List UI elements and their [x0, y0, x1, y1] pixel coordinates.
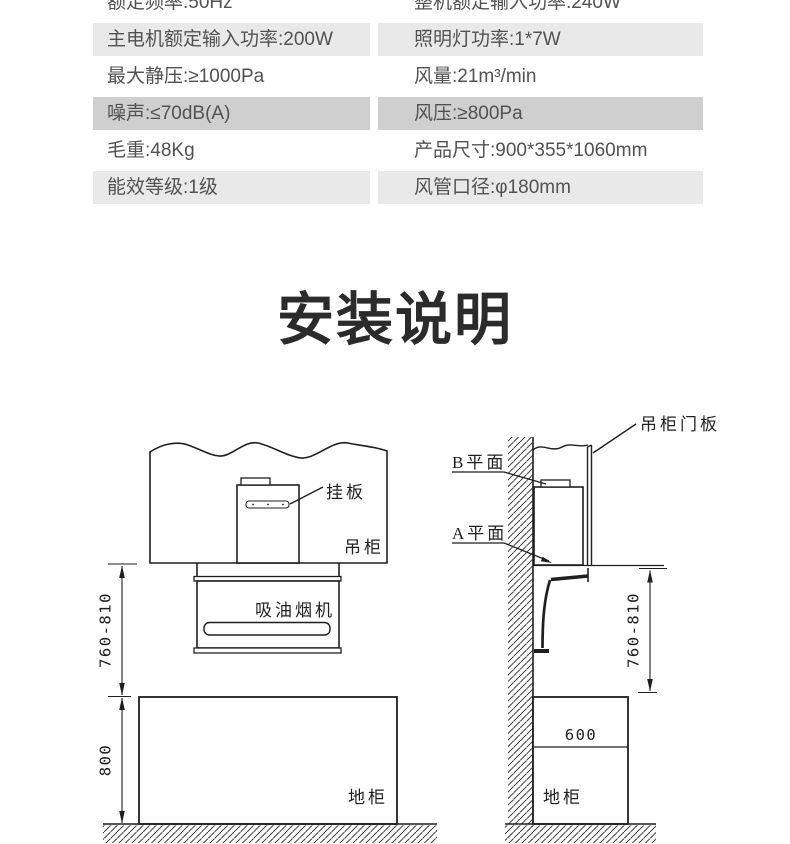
side-view-diagram: 吊柜门板 B平面 A平面	[452, 415, 720, 843]
hood-side-profile	[534, 568, 588, 651]
hood-air-slot	[204, 623, 330, 636]
ground-hatching	[103, 825, 437, 843]
wall-hatching	[508, 437, 533, 824]
base-cabinet-label: 地柜	[348, 788, 388, 807]
front-view-diagram: 挂板 吊柜 吸油烟机 地柜 760-810	[97, 443, 438, 843]
dimension-install-height-side: 760-810	[625, 569, 668, 693]
chimney-cap	[241, 478, 270, 485]
hang-plate-screw	[267, 504, 269, 506]
hood-chimney	[237, 485, 299, 563]
hang-plate-screw	[282, 504, 284, 506]
range-hood-label: 吸油烟机	[255, 601, 335, 620]
install-height-value: 760-810	[97, 592, 115, 668]
plane-b-label: B平面	[452, 453, 506, 472]
cabinet-broken-top	[533, 445, 588, 450]
cabinet-door-panel	[588, 445, 592, 565]
hood-chimney-side	[534, 487, 583, 565]
product-detail-page: 额定频率:50Hz 整机额定输入功率:240W 主电机额定输入功率:200W 照…	[0, 0, 790, 844]
hang-plate-label: 挂板	[326, 483, 366, 502]
base-cabinet-height-value: 800	[97, 744, 115, 777]
dimension-install-height-front: 760-810	[97, 564, 138, 697]
install-height-value: 760-810	[625, 592, 643, 668]
base-cabinet-depth-value: 600	[565, 726, 598, 744]
cabinet-door-panel-label: 吊柜门板	[640, 415, 720, 434]
ground-hatching	[505, 825, 656, 843]
installation-diagrams: 挂板 吊柜 吸油烟机 地柜 760-810	[0, 0, 790, 844]
hang-plate-screw	[252, 504, 254, 506]
door-panel-leader-line	[593, 424, 636, 453]
base-cabinet-label: 地柜	[543, 788, 583, 807]
wall-cabinet-label: 吊柜	[344, 538, 384, 557]
dimension-base-cabinet-height: 800	[97, 698, 125, 824]
hood-bottom-band	[194, 648, 341, 653]
plane-a-label: A平面	[452, 524, 507, 543]
